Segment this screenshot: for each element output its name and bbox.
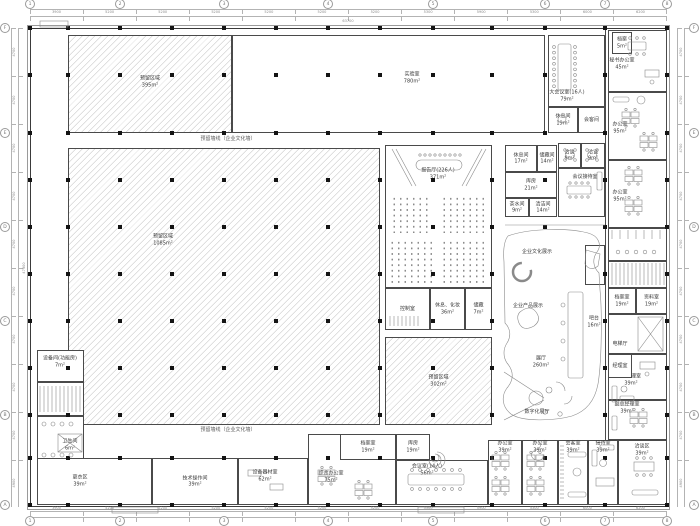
structural-column bbox=[274, 225, 278, 229]
structural-column bbox=[603, 225, 607, 229]
grid-bubble-top-2: 2 bbox=[115, 0, 125, 9]
structural-column bbox=[170, 456, 174, 460]
structural-column bbox=[66, 225, 70, 229]
dimension-number: 5300 bbox=[530, 506, 539, 510]
structural-column bbox=[665, 178, 669, 182]
structural-column bbox=[665, 366, 669, 370]
meeting-room-12 bbox=[396, 460, 488, 505]
structural-column bbox=[431, 366, 435, 370]
structural-column bbox=[490, 366, 494, 370]
dimension-number: 4700 bbox=[679, 95, 683, 104]
grid-bubble-right-D: D bbox=[689, 222, 699, 232]
structural-column bbox=[326, 366, 330, 370]
dimension-number: 4700 bbox=[12, 239, 16, 248]
dimension-number: 4700 bbox=[679, 335, 683, 344]
dimension-number: 6200 bbox=[636, 10, 645, 14]
structural-column bbox=[222, 366, 226, 370]
structural-column bbox=[222, 131, 226, 135]
structural-column bbox=[28, 26, 32, 30]
file-room-3 bbox=[340, 434, 396, 460]
structural-column bbox=[222, 178, 226, 182]
grid-bubble-left-D: D bbox=[0, 222, 10, 232]
structural-column bbox=[378, 73, 382, 77]
dimension-number: 4700 bbox=[679, 431, 683, 440]
structural-column bbox=[431, 272, 435, 276]
dimension-number: 4700 bbox=[679, 239, 683, 248]
grid-bubble-left-F: F bbox=[0, 23, 10, 33]
structural-column bbox=[378, 456, 382, 460]
structural-column bbox=[543, 131, 547, 135]
reserved-area-main bbox=[68, 148, 380, 425]
structural-column bbox=[118, 413, 122, 417]
structural-column bbox=[170, 272, 174, 276]
structural-column bbox=[274, 178, 278, 182]
dimension-number: 4700 bbox=[12, 143, 16, 152]
grid-bubble-right-C: C bbox=[689, 316, 699, 326]
deputy-gm-office bbox=[608, 400, 667, 440]
rest-room-1 bbox=[548, 107, 578, 133]
structural-column bbox=[170, 503, 174, 507]
structural-column bbox=[118, 503, 122, 507]
structural-column bbox=[326, 456, 330, 460]
structural-column bbox=[118, 272, 122, 276]
structural-column bbox=[28, 73, 32, 77]
structural-column bbox=[603, 178, 607, 182]
structural-column bbox=[378, 26, 382, 30]
storage-a bbox=[465, 288, 492, 330]
dimension-number: 3900 bbox=[52, 10, 61, 14]
structural-column bbox=[490, 456, 494, 460]
guest-room bbox=[578, 107, 605, 133]
meeting-reception bbox=[558, 168, 605, 217]
grid-bubble-top-4: 4 bbox=[323, 0, 333, 9]
control-room bbox=[385, 288, 430, 330]
structural-column bbox=[222, 26, 226, 30]
dimension-number: 5900 bbox=[477, 10, 486, 14]
structural-column bbox=[66, 413, 70, 417]
tech-operation-room bbox=[152, 458, 238, 505]
structural-column bbox=[665, 131, 669, 135]
structural-column bbox=[66, 131, 70, 135]
elevator-hall bbox=[608, 314, 667, 354]
talk-room-2 bbox=[581, 143, 605, 168]
seat-block-3 bbox=[389, 240, 432, 284]
structural-column bbox=[118, 319, 122, 323]
file-room-1 bbox=[608, 288, 636, 314]
structural-column bbox=[378, 178, 382, 182]
dimension-number: 5200 bbox=[371, 10, 380, 14]
wc-right bbox=[608, 228, 667, 261]
dimension-number: 4700 bbox=[12, 47, 16, 56]
structural-column bbox=[222, 225, 226, 229]
structural-column bbox=[274, 366, 278, 370]
structural-column bbox=[170, 73, 174, 77]
structural-column bbox=[665, 272, 669, 276]
structural-column bbox=[28, 413, 32, 417]
structural-column bbox=[378, 413, 382, 417]
structural-column bbox=[431, 131, 435, 135]
dimension-number: 4700 bbox=[12, 335, 16, 344]
grid-bubble-top-1: 1 bbox=[25, 0, 35, 9]
structural-column bbox=[543, 178, 547, 182]
manager-office bbox=[608, 354, 632, 378]
structural-column bbox=[490, 272, 494, 276]
structural-column bbox=[66, 319, 70, 323]
dimension-number: 6200 bbox=[636, 506, 645, 510]
structural-column bbox=[28, 178, 32, 182]
dimension-total-top: 63700 bbox=[342, 19, 353, 23]
structural-column bbox=[274, 73, 278, 77]
stair-left bbox=[37, 382, 84, 416]
dimension-line-top-1 bbox=[30, 9, 667, 14]
structural-column bbox=[326, 26, 330, 30]
reserved-area-top bbox=[68, 35, 232, 133]
grid-bubble-left-B: B bbox=[0, 410, 10, 420]
structural-column bbox=[665, 319, 669, 323]
dimension-total-left: 47900 bbox=[22, 262, 26, 273]
dimension-number: 4900 bbox=[679, 479, 683, 488]
structural-column bbox=[222, 413, 226, 417]
structural-column bbox=[490, 178, 494, 182]
structural-column bbox=[378, 366, 382, 370]
file-room-2 bbox=[636, 288, 667, 314]
structural-column bbox=[326, 225, 330, 229]
structural-column bbox=[543, 73, 547, 77]
dimension-number: 4700 bbox=[679, 47, 683, 56]
structural-column bbox=[28, 225, 32, 229]
structural-column bbox=[665, 73, 669, 77]
dimension-number: 5200 bbox=[264, 10, 273, 14]
grid-bubble-left-A: A bbox=[0, 500, 10, 510]
structural-column bbox=[222, 319, 226, 323]
seat-block-1 bbox=[391, 196, 432, 233]
structural-column bbox=[490, 225, 494, 229]
structural-column bbox=[222, 503, 226, 507]
dimension-number: 5200 bbox=[105, 506, 114, 510]
structural-column bbox=[431, 456, 435, 460]
grid-bubble-top-7: 7 bbox=[600, 0, 610, 9]
floor-plan-canvas: 63700 47900 预留区域 395m²预留区域 1085m²预留区域 30… bbox=[0, 0, 700, 525]
corridor-wall-right-strip bbox=[605, 28, 606, 440]
talk-room-1 bbox=[558, 143, 581, 168]
structural-column bbox=[274, 456, 278, 460]
structural-column bbox=[665, 26, 669, 30]
structural-column bbox=[118, 366, 122, 370]
structural-column bbox=[28, 272, 32, 276]
structural-column bbox=[66, 26, 70, 30]
structural-column bbox=[431, 73, 435, 77]
structural-column bbox=[431, 413, 435, 417]
office-95-a bbox=[608, 92, 667, 160]
dimension-number: 5200 bbox=[264, 506, 273, 510]
structural-column bbox=[490, 73, 494, 77]
dimension-line-bottom-2 bbox=[30, 517, 667, 522]
structural-column bbox=[378, 225, 382, 229]
reserved-area-small bbox=[385, 337, 492, 425]
structural-column bbox=[326, 178, 330, 182]
grid-bubble-right-E: E bbox=[689, 128, 699, 138]
dimension-number: 4700 bbox=[12, 95, 16, 104]
dimension-number: 5200 bbox=[158, 506, 167, 510]
dimension-number: 4700 bbox=[12, 431, 16, 440]
structural-column bbox=[603, 456, 607, 460]
dimension-number: 4700 bbox=[12, 191, 16, 200]
dimension-number: 6000 bbox=[583, 506, 592, 510]
structural-column bbox=[66, 73, 70, 77]
grid-bubble-top-5: 5 bbox=[428, 0, 438, 9]
dimension-number: 4900 bbox=[12, 479, 16, 488]
dimension-number: 3900 bbox=[52, 506, 61, 510]
grid-bubble-right-A: A bbox=[689, 500, 699, 510]
grid-bubble-right-F: F bbox=[689, 23, 699, 33]
structural-column bbox=[118, 26, 122, 30]
treasury bbox=[396, 434, 430, 460]
structural-column bbox=[431, 319, 435, 323]
structural-column bbox=[118, 73, 122, 77]
dimension-number: 5300 bbox=[424, 10, 433, 14]
dimension-number: 4700 bbox=[679, 287, 683, 296]
equipment-room-left bbox=[37, 350, 84, 382]
structural-column bbox=[326, 319, 330, 323]
structural-column bbox=[665, 413, 669, 417]
office-95-b bbox=[608, 160, 667, 228]
wc-left bbox=[37, 416, 84, 462]
structural-column bbox=[326, 413, 330, 417]
structural-column bbox=[28, 319, 32, 323]
structural-column bbox=[118, 178, 122, 182]
dimension-number: 5200 bbox=[211, 506, 220, 510]
dimension-number: 4700 bbox=[12, 383, 16, 392]
dimension-number: 5200 bbox=[211, 10, 220, 14]
makeup-room bbox=[430, 288, 465, 330]
structural-column bbox=[222, 456, 226, 460]
structural-column bbox=[274, 413, 278, 417]
structural-column bbox=[603, 73, 607, 77]
grid-bubble-top-3: 3 bbox=[219, 0, 229, 9]
laboratory bbox=[232, 35, 545, 133]
talk-area bbox=[618, 440, 667, 505]
conference-room-large bbox=[548, 35, 605, 107]
storage-b bbox=[537, 145, 557, 172]
structural-column bbox=[543, 503, 547, 507]
locker-area bbox=[37, 458, 152, 505]
structural-column bbox=[490, 131, 494, 135]
seat-block-4 bbox=[441, 240, 489, 284]
structural-column bbox=[490, 503, 494, 507]
structural-column bbox=[665, 503, 669, 507]
dimension-line-bottom-1 bbox=[30, 511, 667, 516]
reception-room bbox=[588, 440, 618, 505]
dimension-number: 4700 bbox=[12, 287, 16, 296]
structural-column bbox=[118, 225, 122, 229]
stair-right bbox=[608, 261, 667, 288]
dimension-number: 5200 bbox=[158, 10, 167, 14]
structural-column bbox=[170, 319, 174, 323]
structural-column bbox=[222, 73, 226, 77]
structural-column bbox=[665, 456, 669, 460]
dimension-line-right-2 bbox=[684, 28, 689, 507]
archive-small bbox=[612, 32, 632, 54]
structural-column bbox=[326, 272, 330, 276]
grid-bubble-top-6: 6 bbox=[540, 0, 550, 9]
dimension-number: 4700 bbox=[679, 191, 683, 200]
grid-bubble-left-E: E bbox=[0, 128, 10, 138]
structural-column bbox=[274, 131, 278, 135]
structural-column bbox=[170, 131, 174, 135]
canopy-top-left bbox=[40, 21, 68, 27]
tea-room bbox=[505, 198, 529, 217]
structural-column bbox=[490, 319, 494, 323]
structural-column bbox=[378, 131, 382, 135]
structural-column bbox=[66, 503, 70, 507]
structural-column bbox=[274, 503, 278, 507]
structural-column bbox=[543, 456, 547, 460]
structural-column bbox=[603, 503, 607, 507]
structural-column bbox=[490, 26, 494, 30]
structural-column bbox=[170, 178, 174, 182]
structural-column bbox=[378, 272, 382, 276]
structural-column bbox=[543, 225, 547, 229]
structural-column bbox=[326, 131, 330, 135]
structural-column bbox=[118, 131, 122, 135]
structural-column bbox=[66, 178, 70, 182]
structural-column bbox=[28, 503, 32, 507]
structural-column bbox=[326, 503, 330, 507]
structural-column bbox=[603, 272, 607, 276]
cleaning-room bbox=[529, 198, 557, 217]
structural-column bbox=[118, 456, 122, 460]
structural-column bbox=[28, 456, 32, 460]
seat-block-2 bbox=[441, 196, 486, 233]
equipment-store bbox=[238, 458, 308, 505]
structural-column bbox=[170, 225, 174, 229]
structural-column bbox=[603, 131, 607, 135]
structural-column bbox=[543, 26, 547, 30]
dimension-number: 5200 bbox=[317, 10, 326, 14]
office-f bbox=[488, 440, 522, 505]
rest-room-2 bbox=[505, 145, 537, 172]
structural-column bbox=[326, 73, 330, 77]
structural-column bbox=[170, 366, 174, 370]
structural-column bbox=[66, 456, 70, 460]
dimension-number: 5300 bbox=[530, 10, 539, 14]
structural-column bbox=[431, 178, 435, 182]
dimension-number: 5200 bbox=[105, 10, 114, 14]
grid-bubble-right-B: B bbox=[689, 410, 699, 420]
structural-column bbox=[274, 272, 278, 276]
warehouse bbox=[505, 172, 557, 198]
structural-column bbox=[66, 272, 70, 276]
structural-column bbox=[274, 319, 278, 323]
grid-bubble-left-C: C bbox=[0, 316, 10, 326]
structural-column bbox=[665, 225, 669, 229]
structural-column bbox=[603, 26, 607, 30]
dimension-number: 4700 bbox=[679, 143, 683, 152]
dimension-number: 4700 bbox=[679, 383, 683, 392]
structural-column bbox=[431, 26, 435, 30]
structural-column bbox=[603, 413, 607, 417]
dimension-number: 5200 bbox=[317, 506, 326, 510]
structural-column bbox=[66, 366, 70, 370]
structural-column bbox=[170, 413, 174, 417]
structural-column bbox=[603, 366, 607, 370]
office-g bbox=[522, 440, 558, 505]
structural-column bbox=[378, 319, 382, 323]
dimension-number: 5900 bbox=[477, 506, 486, 510]
structural-column bbox=[431, 225, 435, 229]
lounge-room bbox=[558, 440, 588, 505]
grid-bubble-top-8: 8 bbox=[662, 0, 672, 9]
structural-column bbox=[222, 272, 226, 276]
structural-column bbox=[274, 26, 278, 30]
piano-room bbox=[585, 245, 605, 285]
structural-column bbox=[170, 26, 174, 30]
structural-column bbox=[28, 131, 32, 135]
structural-column bbox=[603, 319, 607, 323]
dimension-number: 5300 bbox=[424, 506, 433, 510]
dimension-number: 6000 bbox=[583, 10, 592, 14]
structural-column bbox=[490, 413, 494, 417]
structural-column bbox=[28, 366, 32, 370]
dimension-number: 5200 bbox=[371, 506, 380, 510]
